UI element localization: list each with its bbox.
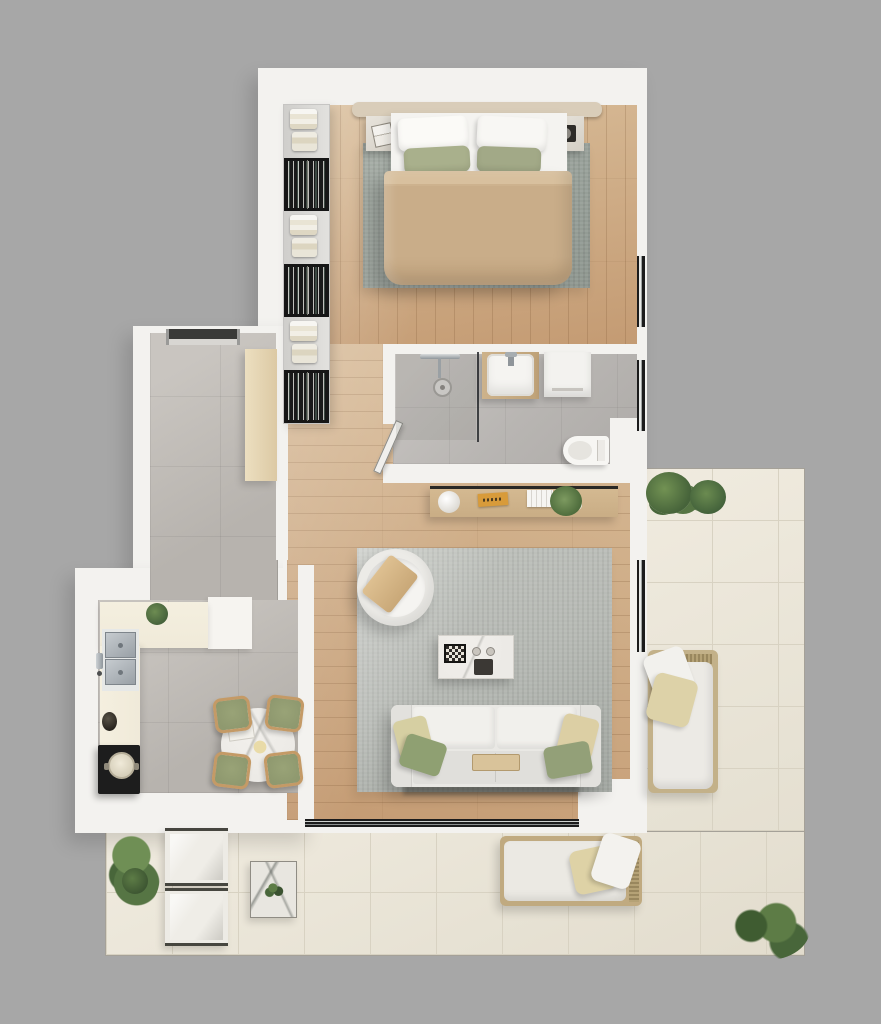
kitchen-plant (146, 603, 168, 625)
sofa-tray (472, 754, 520, 771)
terrace-sliding-door (305, 819, 579, 827)
bedroom-window (637, 256, 645, 327)
kitchen-faucet (96, 653, 103, 669)
dining-chair-ne (264, 694, 305, 733)
dining-chair-se (263, 750, 304, 789)
terrace-lounge-chair (648, 650, 718, 793)
sink-basin-top (105, 632, 136, 658)
console-book (478, 492, 509, 507)
console-flower-pot (550, 486, 582, 516)
terrace-plant-bottom-left (108, 832, 160, 910)
wardrobe (283, 104, 330, 424)
living-room-window (637, 560, 645, 652)
washing-machine (544, 352, 591, 397)
terrace-plant-top-small (690, 480, 726, 514)
floor-plan-canvas (0, 0, 881, 1024)
coffee-cup-left (472, 647, 481, 656)
kitchen-grinder (102, 712, 117, 731)
terrace-plant-bottom-right (726, 898, 810, 960)
sink-basin-bottom (105, 659, 136, 685)
terrace-bench-top (165, 828, 228, 886)
bed-duvet (384, 171, 572, 285)
bathroom-window (637, 360, 645, 431)
wardrobe-section-clothes (284, 264, 329, 317)
cooking-pot (108, 752, 135, 779)
shower-area (396, 354, 476, 440)
toilet (563, 436, 609, 465)
entry-door (166, 329, 240, 345)
bed-pillow-green-right (477, 146, 542, 174)
wardrobe-section-linen (284, 211, 329, 264)
coffee-table-box (474, 659, 493, 675)
bathroom-wall-bottom (383, 464, 647, 483)
bathroom-wall-left (383, 344, 395, 424)
shower-arm (438, 358, 441, 378)
shower-drain (433, 378, 452, 397)
console-vase (438, 491, 460, 513)
kitchen-tall-cabinet (208, 597, 252, 649)
coffee-cup-right (486, 647, 495, 656)
wardrobe-section-clothes (284, 370, 329, 423)
hallway-cabinet (245, 349, 277, 481)
terrace-daybed (500, 836, 642, 906)
terrace-side-table (250, 861, 297, 918)
kitchen-sink (102, 629, 139, 691)
chessboard (444, 644, 466, 663)
dining-chair-sw (211, 751, 252, 790)
bathroom-sink (487, 354, 534, 396)
dining-chair-nw (212, 695, 253, 734)
shower-glass-divider (477, 352, 479, 442)
wardrobe-section-linen (284, 105, 329, 158)
wardrobe-section-linen (284, 317, 329, 370)
terrace-bench-bottom (165, 888, 228, 946)
terrace-plant-top-large (646, 472, 692, 514)
wardrobe-section-clothes (284, 158, 329, 211)
